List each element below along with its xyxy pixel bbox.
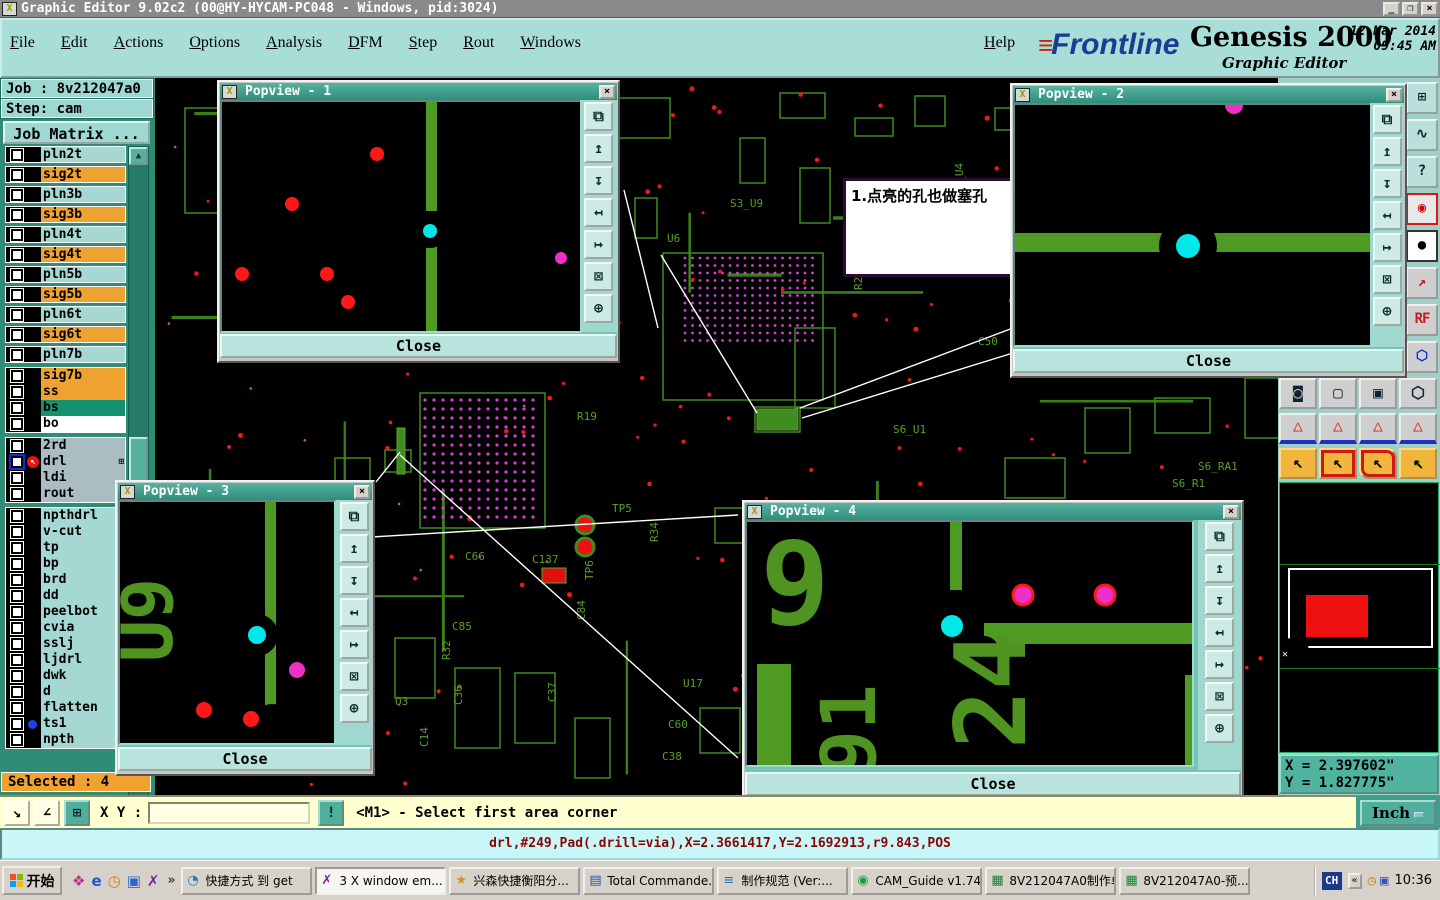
xy-label: X Y : [100,805,142,821]
layer-checkbox[interactable] [11,289,23,301]
layer-checkbox[interactable] [11,654,23,666]
measure-point-icon[interactable]: ↗ [1406,267,1438,299]
logo-speed-lines-icon: ≡ [1038,30,1051,60]
layer-group: npthdrlv-cuttpbpbrdddpeelbotcviassljljdr… [5,507,126,749]
popview-close-button[interactable]: Close [118,747,372,771]
window-controls: _❐× [1383,2,1438,16]
zoom-fit-icon[interactable]: ⊠ [340,662,369,691]
layer-checkbox[interactable] [11,574,23,586]
layer-checkbox[interactable] [11,149,23,161]
layer-row-sig2t[interactable]: sig2t [5,166,126,183]
popview-title: Popview - 4 [770,504,856,519]
clone-view-icon[interactable]: ⧉ [584,102,613,131]
layer-checkbox[interactable] [11,309,23,321]
svg-text:S6_U1: S6_U1 [893,423,926,436]
zoom-fit-icon[interactable]: ⊠ [1205,682,1234,711]
layer-row-sig3b[interactable]: sig3b [5,206,126,223]
scroll-up-arrow[interactable]: ▲ [129,147,148,165]
layer-row-ldi[interactable]: ldi [6,470,125,486]
layer-checkbox[interactable] [11,418,23,430]
clock: 10:36 [1395,873,1432,888]
measure-distance-icon[interactable]: ↘ [4,800,30,826]
xserver-icon[interactable]: ✗ [147,872,160,890]
task-spec-doc-icon: ≡ [723,873,737,888]
shape-tools-icon[interactable]: ⬡ [1406,341,1438,373]
popview-window-4[interactable]: X Popview - 4 × 92491 ⧉↥↧↤↦⊠⊕ Close [742,500,1244,801]
popview-window-1[interactable]: X Popview - 1 × ⧉↥↧↤↦⊠⊕ Close [217,80,620,363]
layer-name[interactable]: bo [41,416,125,432]
layer-row-flatten[interactable]: flatten [6,700,125,716]
layer-checkbox[interactable] [11,670,23,682]
layer-checkbox[interactable] [11,329,23,341]
app-window-icon: X [2,2,17,16]
layer-row-pln4t[interactable]: pln4t [5,226,126,243]
layer-checkbox[interactable] [11,189,23,201]
popview-toolbar: ⧉↥↧↤↦⊠⊕ [580,100,617,332]
layer-name[interactable]: sig7b [41,368,125,384]
pan-right-icon[interactable]: ↦ [584,230,613,259]
step-label: Step: cam [1,99,153,118]
layer-name[interactable]: v-cut [41,524,125,540]
layer-checkbox[interactable] [11,526,23,538]
task-button-label: 3 X window em... [339,874,442,888]
layer-name[interactable]: npthdrl [41,508,125,524]
work-layer-icon: ↖ [27,456,39,468]
layer-name[interactable]: ljdrl [41,652,125,668]
layer-name[interactable]: sig4t [41,247,125,262]
option-menu-indicator [1414,812,1424,818]
layer-row-cvia[interactable]: cvia [6,620,125,636]
layer-checkbox[interactable] [11,638,23,650]
restore-button[interactable]: ❐ [1402,2,1419,16]
clone-view-icon[interactable]: ⧉ [1205,522,1234,551]
layer-row-sslj[interactable]: sslj [6,636,125,652]
popview-close-icon[interactable]: × [1386,88,1402,102]
xy-coordinate-input[interactable] [148,802,310,824]
svg-text:C137: C137 [532,553,559,566]
layer-checkbox[interactable] [11,542,23,554]
layer-checkbox[interactable] [11,488,23,500]
svg-text:S6_R1: S6_R1 [1172,477,1205,490]
layer-checkbox[interactable] [11,606,23,618]
clock-tray-icon[interactable]: ◷ [1368,873,1376,889]
clone-view-icon[interactable]: ⧉ [340,502,369,531]
menu-help[interactable]: Help [984,34,1015,52]
task-xingsen-icon: ★ [455,873,469,888]
tile-windows-icon[interactable]: ⊞ [1406,82,1438,114]
layer-row-drl[interactable]: ↖drl⊞ [6,454,125,470]
task-button-label: 8V212047A0制作单 [1009,872,1116,889]
menu-bar: FileEditActionsOptionsAnalysisDFMStepRou… [10,34,581,52]
minimize-button[interactable]: _ [1383,2,1400,16]
layer-checkbox[interactable] [11,169,23,181]
popview-close-button[interactable]: Close [745,772,1241,796]
pan-up-icon[interactable]: ↥ [1205,554,1234,583]
menu-dfm[interactable]: DFM [348,34,383,52]
task-excel-2[interactable]: ▦8V212047A0-预... [1119,867,1250,895]
layer-name[interactable]: peelbot [41,604,125,620]
layer-checkbox[interactable] [11,472,23,484]
svg-text:TP5: TP5 [612,502,632,515]
layer-row-pln2t[interactable]: pln2t [5,146,126,163]
pad-mode-icon[interactable]: ◙ [1279,378,1317,409]
menu-windows[interactable]: Windows [520,34,581,52]
status-bar: drl,#249,Pad(.drill=via),X=2.3661417,Y=2… [0,828,1440,860]
layer-checkbox[interactable] [11,402,23,414]
task-button-area: ◔快捷方式 到 get✗3 X window em...▾★兴森快捷衡阳分...… [181,867,1250,895]
window-title: Graphic Editor 9.02c2 (00@HY-HYCAM-PC048… [21,1,498,16]
layer-name[interactable]: dwk [41,668,125,684]
clone-view-icon[interactable]: ⧉ [1373,105,1402,134]
layer-name[interactable]: sig3b [41,207,125,222]
task-spec-doc[interactable]: ≡制作规范 (Ver:... [717,867,848,895]
layer-checkbox[interactable] [11,590,23,602]
start-button[interactable]: 开始 [2,866,62,895]
menu-rout[interactable]: Rout [463,34,494,52]
task-shortcut-get-icon: ◔ [187,873,201,888]
layer-row-ljdrl[interactable]: ljdrl [6,652,125,668]
task-shortcut-get[interactable]: ◔快捷方式 到 get [181,867,312,895]
menu-edit[interactable]: Edit [61,34,88,52]
layer-name[interactable]: 2rd [41,438,125,454]
layer-name[interactable]: pln4t [41,227,125,242]
layer-name[interactable]: ldi [41,470,125,486]
app-tray-icon[interactable]: ▣ [1380,873,1388,889]
svg-text:R34: R34 [648,522,661,542]
status-lights-icon[interactable]: ◉ [1406,193,1438,225]
popview-icon: X [222,85,237,99]
layer-row-sig4t[interactable]: sig4t [5,246,126,263]
layer-group: sig7bssbsbo [5,367,126,433]
task-button-label: 8V212047A0-预... [1143,872,1248,889]
task-total-commander-icon: ▤ [589,873,603,888]
scheduler-icon[interactable]: ◷ [108,872,121,890]
popview-toolbar: ⧉↥↧↤↦⊠⊕ [1198,520,1241,770]
layer-row-dwk[interactable]: dwk [6,668,125,684]
popview-close-button[interactable]: Close [220,334,617,358]
rf-mode-icon[interactable]: RF [1406,304,1438,336]
svg-text:C38: C38 [662,750,682,763]
job-label: Job : 8v212047a0 [1,79,153,98]
serpentine-route-icon[interactable]: ∿ [1406,119,1438,151]
pan-left-icon[interactable]: ↤ [340,598,369,627]
menu-options[interactable]: Options [189,34,240,52]
layer-row-bo[interactable]: bo [6,416,125,432]
quick-launch-overflow-icon[interactable]: » [168,873,176,888]
svg-text:C66: C66 [465,550,485,563]
popview-close-button[interactable]: Close [1013,349,1404,373]
layer-name[interactable]: npth [41,732,125,748]
language-indicator[interactable]: CH [1322,872,1342,890]
layer-checkbox[interactable] [11,209,23,221]
layer-grid-icon: ⊞ [119,455,124,470]
layer-name[interactable]: bs [41,400,125,416]
popview-close-icon[interactable]: × [1223,505,1239,519]
mouse-prompt: <M1> - Select first area corner [356,805,617,821]
select-net-icon[interactable]: ↖ [1399,448,1437,479]
svg-text:24: 24 [935,631,1049,749]
title-bar: X Graphic Editor 9.02c2 (00@HY-HYCAM-PC0… [0,0,1440,18]
poly-mode-icon[interactable]: ⬡ [1399,378,1437,409]
view-rectangle[interactable] [1306,595,1368,637]
layer-row-pln5b[interactable]: pln5b [5,266,126,283]
svg-text:S6_RA1: S6_RA1 [1198,460,1238,473]
right-tool-row: ↖↖↖↖ [1279,448,1439,479]
svg-text:TP6: TP6 [583,560,596,580]
popview-titlebar[interactable]: X Popview - 4 × [745,503,1241,520]
popview-canvas[interactable] [1013,103,1372,347]
layer-marker-icon [28,720,37,729]
svg-text:91: 91 [804,684,893,767]
layer-row-d[interactable]: d [6,684,125,700]
nav-grid-line [1280,668,1440,669]
task-button-label: 制作规范 (Ver:... [741,872,832,889]
pan-center-icon[interactable]: ⊕ [584,294,613,323]
layer-checkbox[interactable] [11,440,23,452]
layer-name[interactable]: pln3b [41,187,125,202]
popview-toolbar: ⧉↥↧↤↦⊠⊕ [1370,103,1404,347]
profile-flat-icon[interactable]: △ [1279,413,1317,444]
layer-name[interactable]: sslj [41,636,125,652]
layer-checkbox[interactable] [11,456,23,468]
pan-down-icon[interactable]: ↧ [340,566,369,595]
select-frame-icon[interactable]: ↖ [1319,448,1357,479]
right-tool-row: △△△△ [1279,413,1439,444]
svg-text:C14: C14 [418,727,431,747]
task-total-commander[interactable]: ▤Total Commande... [583,867,714,895]
measure-angle-icon[interactable]: ∠ [34,800,60,826]
close-button[interactable]: × [1421,2,1438,16]
layer-name[interactable]: bp [41,556,125,572]
popview-title: Popview - 3 [143,484,229,499]
menu-actions[interactable]: Actions [114,34,164,52]
popview-icon: X [120,485,135,499]
nav-grid-line [1280,564,1440,565]
popview-canvas[interactable]: U9 [118,500,336,745]
layer-name[interactable]: sig5b [41,287,125,302]
popview-titlebar[interactable]: X Popview - 2 × [1013,86,1404,103]
select-poly-icon[interactable]: ↖ [1359,448,1397,479]
right-tool-column: ⊞∿?◉●↗RF⬡ [1406,82,1440,378]
fill-mode-icon[interactable]: ▣ [1359,378,1397,409]
svg-text:C36: C36 [452,685,465,705]
layer-name[interactable]: ss [41,384,125,400]
layer-name[interactable]: pln5b [41,267,125,282]
layer-name[interactable]: pln7b [41,347,125,362]
layer-checkbox[interactable] [11,349,23,361]
layer-name[interactable]: dd [41,588,125,604]
pan-up-icon[interactable]: ↥ [584,134,613,163]
layer-name[interactable]: sig6t [41,327,125,342]
layer-row-pln3b[interactable]: pln3b [5,186,126,203]
layer-row-ts1[interactable]: ts1 [6,716,125,732]
svg-text:U9: U9 [118,578,189,662]
layer-checkbox[interactable] [11,558,23,570]
layer-name[interactable]: pln6t [41,307,125,322]
job-matrix-button[interactable]: Job Matrix ... [3,121,150,144]
tray-icons: ◷▣ [1368,873,1389,889]
layer-name[interactable]: rout [41,486,125,502]
layer-checkbox[interactable] [11,229,23,241]
layer-name[interactable]: sig2t [41,167,125,182]
windows-taskbar: 开始 ❖e◷▣✗ » ◔快捷方式 到 get✗3 X window em...▾… [0,860,1440,900]
layer-name[interactable]: cvia [41,620,125,636]
popview-close-icon[interactable]: × [354,485,370,499]
status-text: drl,#249,Pad(.drill=via),X=2.3661417,Y=2… [489,836,951,851]
alert-icon[interactable]: ! [318,800,344,826]
task-button-label: Total Commande... [607,874,714,888]
zoom-fit-icon[interactable]: ⊠ [584,262,613,291]
svg-text:U6: U6 [667,232,680,245]
svg-text:C37: C37 [546,682,559,702]
task-xwindow-group[interactable]: ✗3 X window em...▾ [315,867,446,895]
popview-icon: X [747,505,762,519]
command-bar-tools: ↘∠⊞ [0,800,90,826]
layer-name[interactable]: flatten [41,700,125,716]
cursor-coordinates: X = 2.397602" Y = 1.827775" [1279,754,1439,794]
zoom-navigator[interactable]: ✕ [1279,482,1439,753]
layer-checkbox[interactable] [11,734,23,746]
layer-row-bp[interactable]: bp [6,556,125,572]
product-subtitle: Graphic Editor [1222,54,1346,72]
task-button-label: CAM_Guide v1.74 [875,874,981,888]
menu-step[interactable]: Step [409,34,437,52]
pan-right-icon[interactable]: ↦ [340,630,369,659]
task-button-label: 快捷方式 到 get [205,872,292,889]
layer-checkbox[interactable] [11,386,23,398]
popview-window-2[interactable]: X Popview - 2 × ⧉↥↧↤↦⊠⊕ Close [1010,83,1407,378]
app-icon[interactable]: ▣ [127,872,141,890]
frontline-logo: ≡Frontline [1038,28,1180,62]
layer-name[interactable]: pln2t [41,147,125,162]
pan-down-icon[interactable]: ↧ [1373,169,1402,198]
task-xingsen[interactable]: ★兴森快捷衡阳分... [449,867,580,895]
layer-checkbox[interactable] [11,510,23,522]
menu-analysis[interactable]: Analysis [266,34,322,52]
layer-row-v-cut[interactable]: v-cut [6,524,125,540]
layer-row-ss[interactable]: ss [6,384,125,400]
select-single-icon[interactable]: ↖ [1279,448,1317,479]
popview-window-3[interactable]: X Popview - 3 × U9 ⧉↥↧↤↦⊠⊕ Close [115,480,375,776]
layer-checkbox[interactable] [11,269,23,281]
popview-titlebar[interactable]: X Popview - 3 × [118,483,372,500]
svg-text:R32: R32 [440,640,453,660]
layer-checkbox[interactable] [11,622,23,634]
layer-row-peelbot[interactable]: peelbot [6,604,125,620]
layer-row-sig7b[interactable]: sig7b [6,368,125,384]
layer-checkbox[interactable] [11,702,23,714]
pan-up-icon[interactable]: ↥ [340,534,369,563]
svg-text:U17: U17 [683,677,703,690]
task-button-label: 兴森快捷衡阳分... [473,872,568,889]
svg-text:9: 9 [760,520,829,652]
help-icon[interactable]: ? [1406,156,1438,188]
pan-down-icon[interactable]: ↧ [1205,586,1234,615]
pan-right-icon[interactable]: ↦ [1373,233,1402,262]
tray-collapse-icon[interactable]: « [1348,873,1362,889]
layer-name[interactable]: drl⊞ [41,454,125,470]
layer-row-pln7b[interactable]: pln7b [5,346,126,363]
popview-canvas[interactable] [220,100,582,333]
pad-display-icon[interactable]: ● [1406,230,1438,262]
grid-toggle-icon[interactable]: ⊞ [64,800,90,826]
svg-text:C60: C60 [668,718,688,731]
layer-name[interactable]: brd [41,572,125,588]
layer-group: 2rd↖drl⊞ldirout [5,437,126,503]
layer-name[interactable]: d [41,684,125,700]
pan-center-icon[interactable]: ⊕ [1373,297,1402,326]
svg-text:C85: C85 [452,620,472,633]
pan-left-icon[interactable]: ↤ [1205,618,1234,647]
ie-icon[interactable]: e [91,872,101,890]
popview-canvas[interactable]: 92491 [745,520,1194,767]
profile-peak-icon[interactable]: △ [1319,413,1357,444]
layer-row-sig6t[interactable]: sig6t [5,326,126,343]
right-tool-row: ◙▢▣⬡ [1279,378,1439,409]
layer-checkbox[interactable] [11,249,23,261]
zoom-fit-icon[interactable]: ⊠ [1373,265,1402,294]
popview-title: Popview - 2 [1038,87,1124,102]
pan-center-icon[interactable]: ⊕ [1205,714,1234,743]
unit-selector-button[interactable]: Inch [1360,800,1436,826]
menu-file[interactable]: File [10,34,35,52]
layer-row-tp[interactable]: tp [6,540,125,556]
app-shortcut-icon[interactable]: ❖ [72,872,85,890]
layer-row-dd[interactable]: dd [6,588,125,604]
layer-name[interactable]: tp [41,540,125,556]
svg-text:R19: R19 [577,410,597,423]
quick-launch-area: ❖e◷▣✗ [72,872,160,890]
pan-left-icon[interactable]: ↤ [584,198,613,227]
layer-checkbox[interactable] [11,686,23,698]
layer-row-2rd[interactable]: 2rd [6,438,125,454]
layer-list: pln2tsig2tpln3bsig3bpln4tsig4tpln5bsig5b… [5,146,126,753]
system-tray: CH « ◷▣ 10:36 [1314,866,1440,896]
svg-text:Q3: Q3 [395,695,408,708]
profile-span-icon[interactable]: △ [1399,413,1437,444]
pan-right-icon[interactable]: ↦ [1205,650,1234,679]
layer-name[interactable]: ts1 [41,716,125,732]
layer-row-brd[interactable]: brd [6,572,125,588]
pan-up-icon[interactable]: ↥ [1373,137,1402,166]
pan-down-icon[interactable]: ↧ [584,166,613,195]
layer-row-bs[interactable]: bs [6,400,125,416]
popview-title: Popview - 1 [245,84,331,99]
layer-row-sig5b[interactable]: sig5b [5,286,126,303]
popview-close-icon[interactable]: × [599,85,615,99]
task-cam-guide[interactable]: ◉CAM_Guide v1.74 [851,867,982,895]
pan-center-icon[interactable]: ⊕ [340,694,369,723]
unit-area: Inch [1356,796,1440,829]
task-excel-1[interactable]: ▦8V212047A0制作单 [985,867,1116,895]
task-excel-2-icon: ▦ [1125,873,1139,888]
popview-titlebar[interactable]: X Popview - 1 × [220,83,617,100]
layer-row-npth[interactable]: npth [6,732,125,748]
layer-checkbox[interactable] [11,718,23,730]
date-time: 12 Mar 2014 09:45 AM [1350,24,1436,54]
layer-row-npthdrl[interactable]: npthdrl [6,508,125,524]
profile-trap-icon[interactable]: △ [1359,413,1397,444]
windows-flag-icon [10,874,24,888]
layer-checkbox[interactable] [11,370,23,382]
pan-left-icon[interactable]: ↤ [1373,201,1402,230]
layer-row-pln6t[interactable]: pln6t [5,306,126,323]
menu-panel: FileEditActionsOptionsAnalysisDFMStepRou… [0,18,1440,78]
layer-row-rout[interactable]: rout [6,486,125,502]
outline-mode-icon[interactable]: ▢ [1319,378,1357,409]
popview-icon: X [1015,88,1030,102]
popview-toolbar: ⧉↥↧↤↦⊠⊕ [336,500,372,745]
